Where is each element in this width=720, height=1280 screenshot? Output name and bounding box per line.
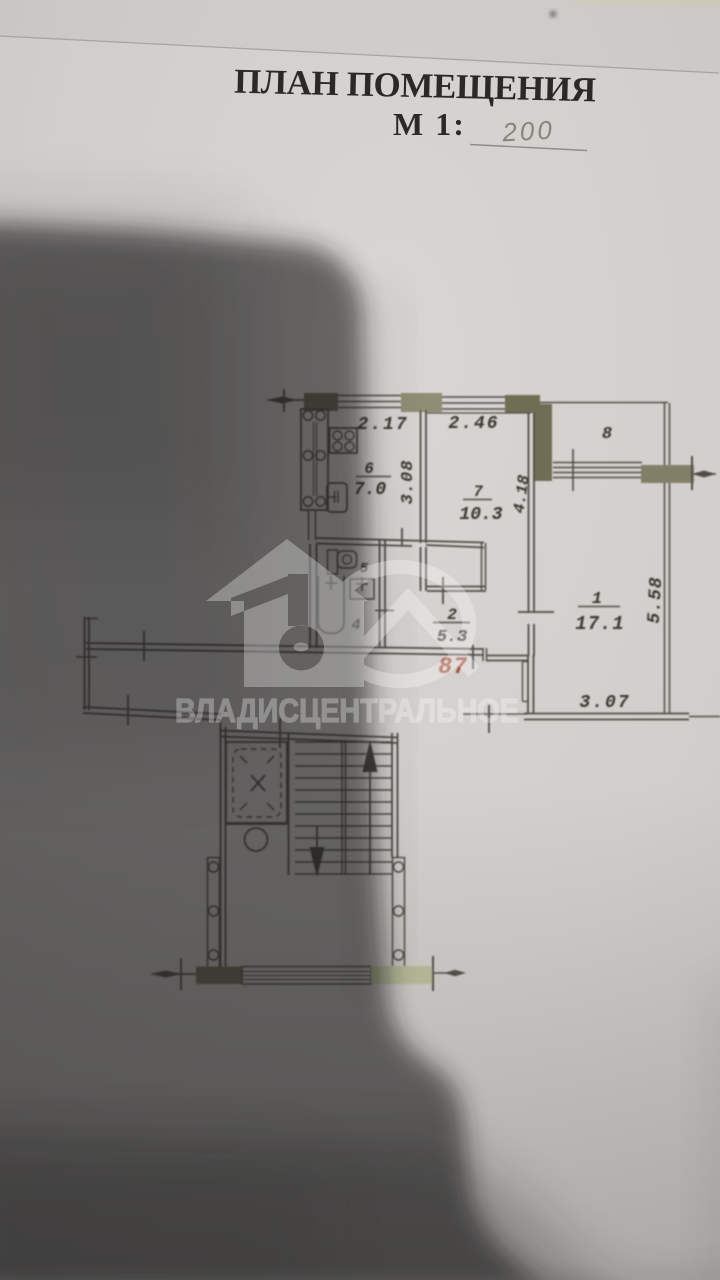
svg-text:ВЛАДИСЦЕНТРАЛЬНОЕ: ВЛАДИСЦЕНТРАЛЬНОЕ — [175, 692, 519, 729]
svg-text:8: 8 — [602, 425, 612, 444]
svg-text:3.08: 3.08 — [399, 460, 418, 505]
svg-text:2.46: 2.46 — [448, 414, 499, 434]
svg-text:200: 200 — [501, 115, 556, 148]
svg-text:2: 2 — [447, 606, 457, 624]
svg-text:3.07: 3.07 — [579, 693, 630, 713]
svg-text:10.3: 10.3 — [459, 505, 502, 525]
svg-text:5.58: 5.58 — [645, 576, 667, 624]
svg-text:М 1:: М 1: — [393, 106, 466, 142]
svg-text:7: 7 — [473, 483, 483, 501]
svg-text:17.1: 17.1 — [575, 613, 625, 635]
